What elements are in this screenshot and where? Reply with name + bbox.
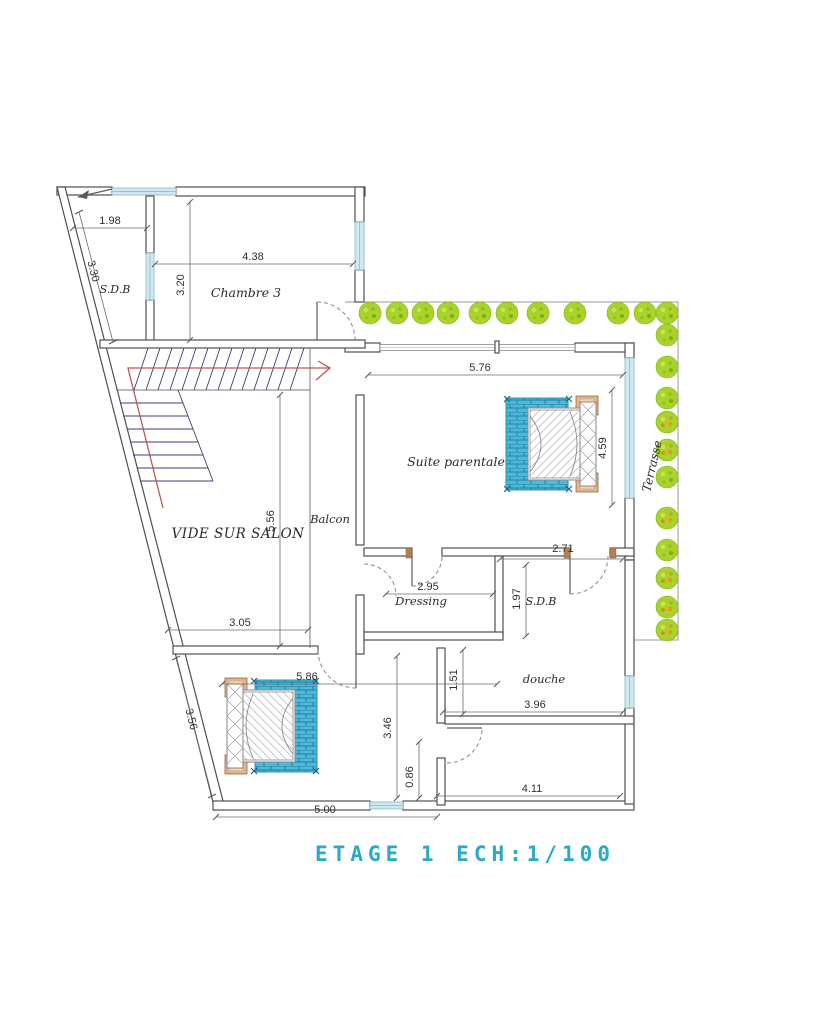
svg-text:3.20: 3.20 <box>175 274 187 295</box>
svg-text:1.51: 1.51 <box>448 669 460 690</box>
dim-bedroom-height: 3.46 <box>382 653 400 801</box>
bed-bedroom-lower <box>225 678 319 774</box>
label-vide-sur-salon: VIDE SUR SALON <box>172 526 306 542</box>
dim-vide-height: 5.56 <box>265 392 283 649</box>
svg-text:4.11: 4.11 <box>522 783 543 795</box>
dim-douche-offset: 1.51 <box>448 647 466 717</box>
tree-icon <box>656 356 678 378</box>
dim-chambre3-width: 4.38 <box>152 251 356 267</box>
svg-text:3.46: 3.46 <box>382 717 394 738</box>
svg-text:5.00: 5.00 <box>314 804 335 816</box>
label-sdb-top: S.D.B <box>100 283 131 296</box>
tree-icon <box>359 302 381 324</box>
bed-suite-parentale <box>504 396 598 492</box>
stair-direction-line <box>128 361 330 508</box>
door-bottom-room <box>447 728 482 763</box>
svg-text:1.98: 1.98 <box>99 215 120 227</box>
tree-icon <box>656 507 678 529</box>
dim-chambre3-height: 3.20 <box>175 199 193 343</box>
tree-icon <box>656 619 678 641</box>
label-douche: douche <box>523 672 566 686</box>
floor-plan-drawing: 1.98 3.30 3.20 4.38 5.76 4.59 <box>0 0 828 1035</box>
tree-icon <box>656 411 678 433</box>
label-sdb-right: S.D.B <box>526 595 557 608</box>
dim-door-offset: 0.86 <box>404 739 422 801</box>
floor-plan-canvas: 1.98 3.30 3.20 4.38 5.76 4.59 <box>0 0 828 1035</box>
svg-text:3.05: 3.05 <box>229 617 250 629</box>
staircase <box>120 348 330 508</box>
tree-icon <box>656 387 678 409</box>
svg-text:4.38: 4.38 <box>242 251 263 263</box>
tree-icon <box>656 596 678 618</box>
svg-text:2.95: 2.95 <box>417 581 438 593</box>
dim-douche-width: 3.96 <box>440 699 626 715</box>
svg-text:5.76: 5.76 <box>469 362 490 374</box>
dim-suite-width: 5.76 <box>365 362 626 378</box>
tree-icon <box>607 302 629 324</box>
dim-vide-width: 3.05 <box>165 617 311 633</box>
svg-text:2.71: 2.71 <box>552 543 573 555</box>
svg-text:0.86: 0.86 <box>404 766 416 787</box>
tree-icon <box>527 302 549 324</box>
terrace-trees-top-row <box>359 302 678 324</box>
tree-icon <box>496 302 518 324</box>
label-dressing: Dressing <box>394 594 447 608</box>
label-chambre3: Chambre 3 <box>211 285 281 300</box>
tree-icon <box>412 302 434 324</box>
label-suite-parentale: Suite parentale <box>407 454 505 469</box>
svg-text:5.86: 5.86 <box>296 671 317 683</box>
tree-icon <box>656 567 678 589</box>
terrace-trees-right-column <box>656 324 678 641</box>
label-balcon: Balcon <box>309 512 350 526</box>
plan-title: ETAGE 1 ECH:1/100 <box>315 842 615 866</box>
door-balcon-bedroom <box>318 650 356 688</box>
door-balcon-dressing <box>364 564 396 596</box>
svg-text:4.59: 4.59 <box>597 437 609 458</box>
tree-icon <box>656 539 678 561</box>
svg-text:1.97: 1.97 <box>511 588 523 609</box>
tree-icon <box>564 302 586 324</box>
tree-icon <box>437 302 459 324</box>
dim-suite-height: 4.59 <box>597 387 615 508</box>
tree-icon <box>469 302 491 324</box>
tree-icon <box>634 302 656 324</box>
tree-icon <box>656 302 678 324</box>
tree-icon <box>386 302 408 324</box>
tree-icon <box>656 324 678 346</box>
dim-bottom-room-width: 4.11 <box>434 783 623 799</box>
tree-icon <box>656 466 678 488</box>
door-chambre3 <box>317 302 355 340</box>
svg-text:3.96: 3.96 <box>524 699 545 711</box>
